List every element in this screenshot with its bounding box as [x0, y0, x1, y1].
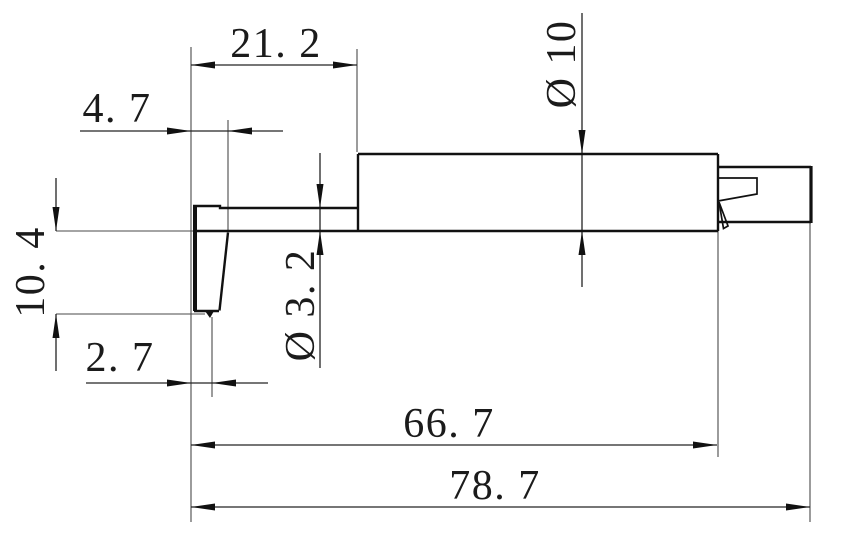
extension-lines — [56, 47, 810, 522]
arrow-78-7-right — [786, 504, 810, 511]
technical-drawing-canvas: 21. 2 4. 7 10. 4 Ø 3. 2 Ø 10 2. 7 66. 7 … — [0, 0, 845, 538]
arrow-21-2-left — [191, 62, 215, 69]
arrow-dia-3-2-top — [317, 184, 324, 208]
arrow-4-7-right — [228, 128, 252, 135]
arrow-21-2-right — [333, 62, 357, 69]
dim-10-4-label: 10. 4 — [8, 226, 54, 318]
part-connector-latch-wedge — [719, 202, 728, 229]
arrow-dia-10-top — [579, 130, 586, 154]
arrow-66-7-left — [191, 442, 215, 449]
arrow-2-7-right — [212, 380, 236, 387]
part-stylus-contact-point — [205, 311, 214, 318]
dim-4-7-label: 4. 7 — [83, 86, 152, 132]
dim-dia-10-label: Ø 10 — [539, 20, 585, 109]
arrow-4-7-left — [167, 128, 191, 135]
dim-66-7-label: 66. 7 — [403, 401, 495, 447]
dim-21-2-label: 21. 2 — [230, 21, 322, 67]
dimension-labels: 21. 2 4. 7 10. 4 Ø 3. 2 Ø 10 2. 7 66. 7 … — [8, 20, 585, 509]
arrow-78-7-left — [191, 504, 215, 511]
dim-dia-3-2-label: Ø 3. 2 — [278, 249, 324, 362]
arrow-dia-10-bottom — [579, 231, 586, 255]
part-arm-top-edge — [193, 206, 358, 208]
arrow-66-7-right — [693, 442, 717, 449]
technical-drawing-page: 21. 2 4. 7 10. 4 Ø 3. 2 Ø 10 2. 7 66. 7 … — [0, 0, 845, 538]
part-connector-latch — [718, 178, 757, 201]
arrow-2-7-left — [167, 380, 191, 387]
part-finger-inner-slant — [220, 233, 229, 311]
dim-2-7-label: 2. 7 — [86, 335, 155, 381]
dim-78-7-label: 78. 7 — [449, 463, 541, 509]
